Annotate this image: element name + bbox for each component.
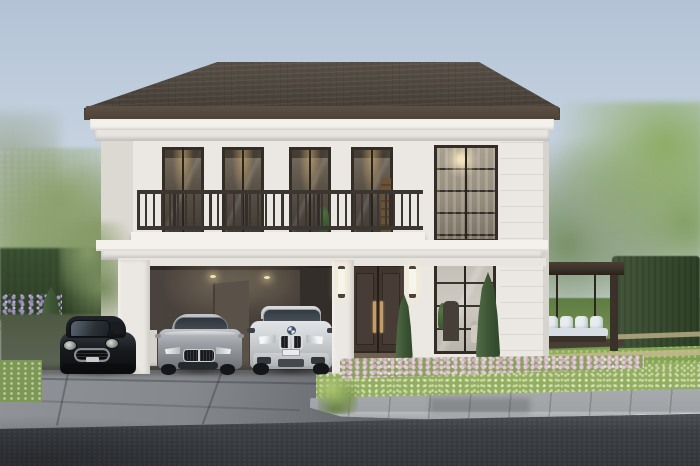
- bmw-suv: [250, 306, 334, 376]
- door-handle-right: [380, 301, 383, 333]
- mini-mirror: [107, 332, 114, 336]
- lawn-patch-left: [0, 360, 42, 402]
- tall-window-upper: [434, 145, 498, 242]
- suv-grille-left: [279, 334, 290, 350]
- suv-center-intake: [278, 359, 304, 367]
- garage-ceiling-light: [210, 275, 216, 278]
- bmw-sedan: [156, 314, 244, 376]
- suv-mirror-left: [247, 328, 255, 333]
- house-exterior-render: [0, 0, 700, 466]
- railing-balusters: [137, 194, 423, 226]
- sedan-wheel-right: [220, 364, 235, 375]
- roof-fascia: [84, 106, 560, 120]
- sedan-grille-right: [199, 349, 215, 362]
- mini-license-plate: [86, 357, 99, 362]
- pergola-post-right: [610, 275, 618, 351]
- swing-frame: [546, 336, 606, 342]
- upper-cornice: [90, 119, 554, 130]
- railing-bottom-rail: [137, 226, 423, 230]
- window-mullion: [465, 148, 467, 239]
- mini-bumper: [62, 364, 134, 373]
- sedan-mirror-right: [238, 334, 244, 338]
- suv-wheel-left: [253, 363, 269, 375]
- upper-cornice-step: [95, 130, 549, 141]
- road-shadow: [0, 415, 250, 466]
- swing-rod-right: [594, 275, 596, 319]
- mini-hatchback: [60, 316, 138, 378]
- door-handle-left: [373, 301, 376, 333]
- wall-sconce-right: [409, 266, 416, 298]
- swing-rod-left: [556, 275, 558, 319]
- suv-license-plate: [282, 349, 300, 356]
- door-leaf-left: [356, 273, 374, 345]
- suv-grille-right: [292, 334, 303, 350]
- mid-cornice: [96, 240, 548, 251]
- door-split-line: [377, 265, 379, 353]
- front-door: [352, 260, 404, 353]
- hedge-wall-right: [612, 256, 700, 356]
- sidewalk-shadow: [430, 398, 530, 414]
- sedan-grille-left: [183, 349, 199, 362]
- wall-sconce-left: [338, 266, 345, 298]
- window-mullion: [464, 261, 466, 351]
- sedan-hood-highlight: [164, 331, 236, 336]
- mini-headlight-right: [105, 338, 119, 349]
- sedan-lower-intake: [178, 362, 218, 369]
- garage-ceiling-light: [264, 276, 270, 279]
- sedan-wheel-left: [161, 364, 176, 375]
- mini-windshield: [70, 320, 110, 337]
- sedan-mirror-left: [155, 334, 161, 338]
- interior-chair: [443, 301, 459, 341]
- swing-bench: [544, 314, 608, 348]
- curbside-shrub: [318, 378, 358, 414]
- balcony-railing: [137, 190, 423, 234]
- suv-wheel-right: [313, 363, 329, 375]
